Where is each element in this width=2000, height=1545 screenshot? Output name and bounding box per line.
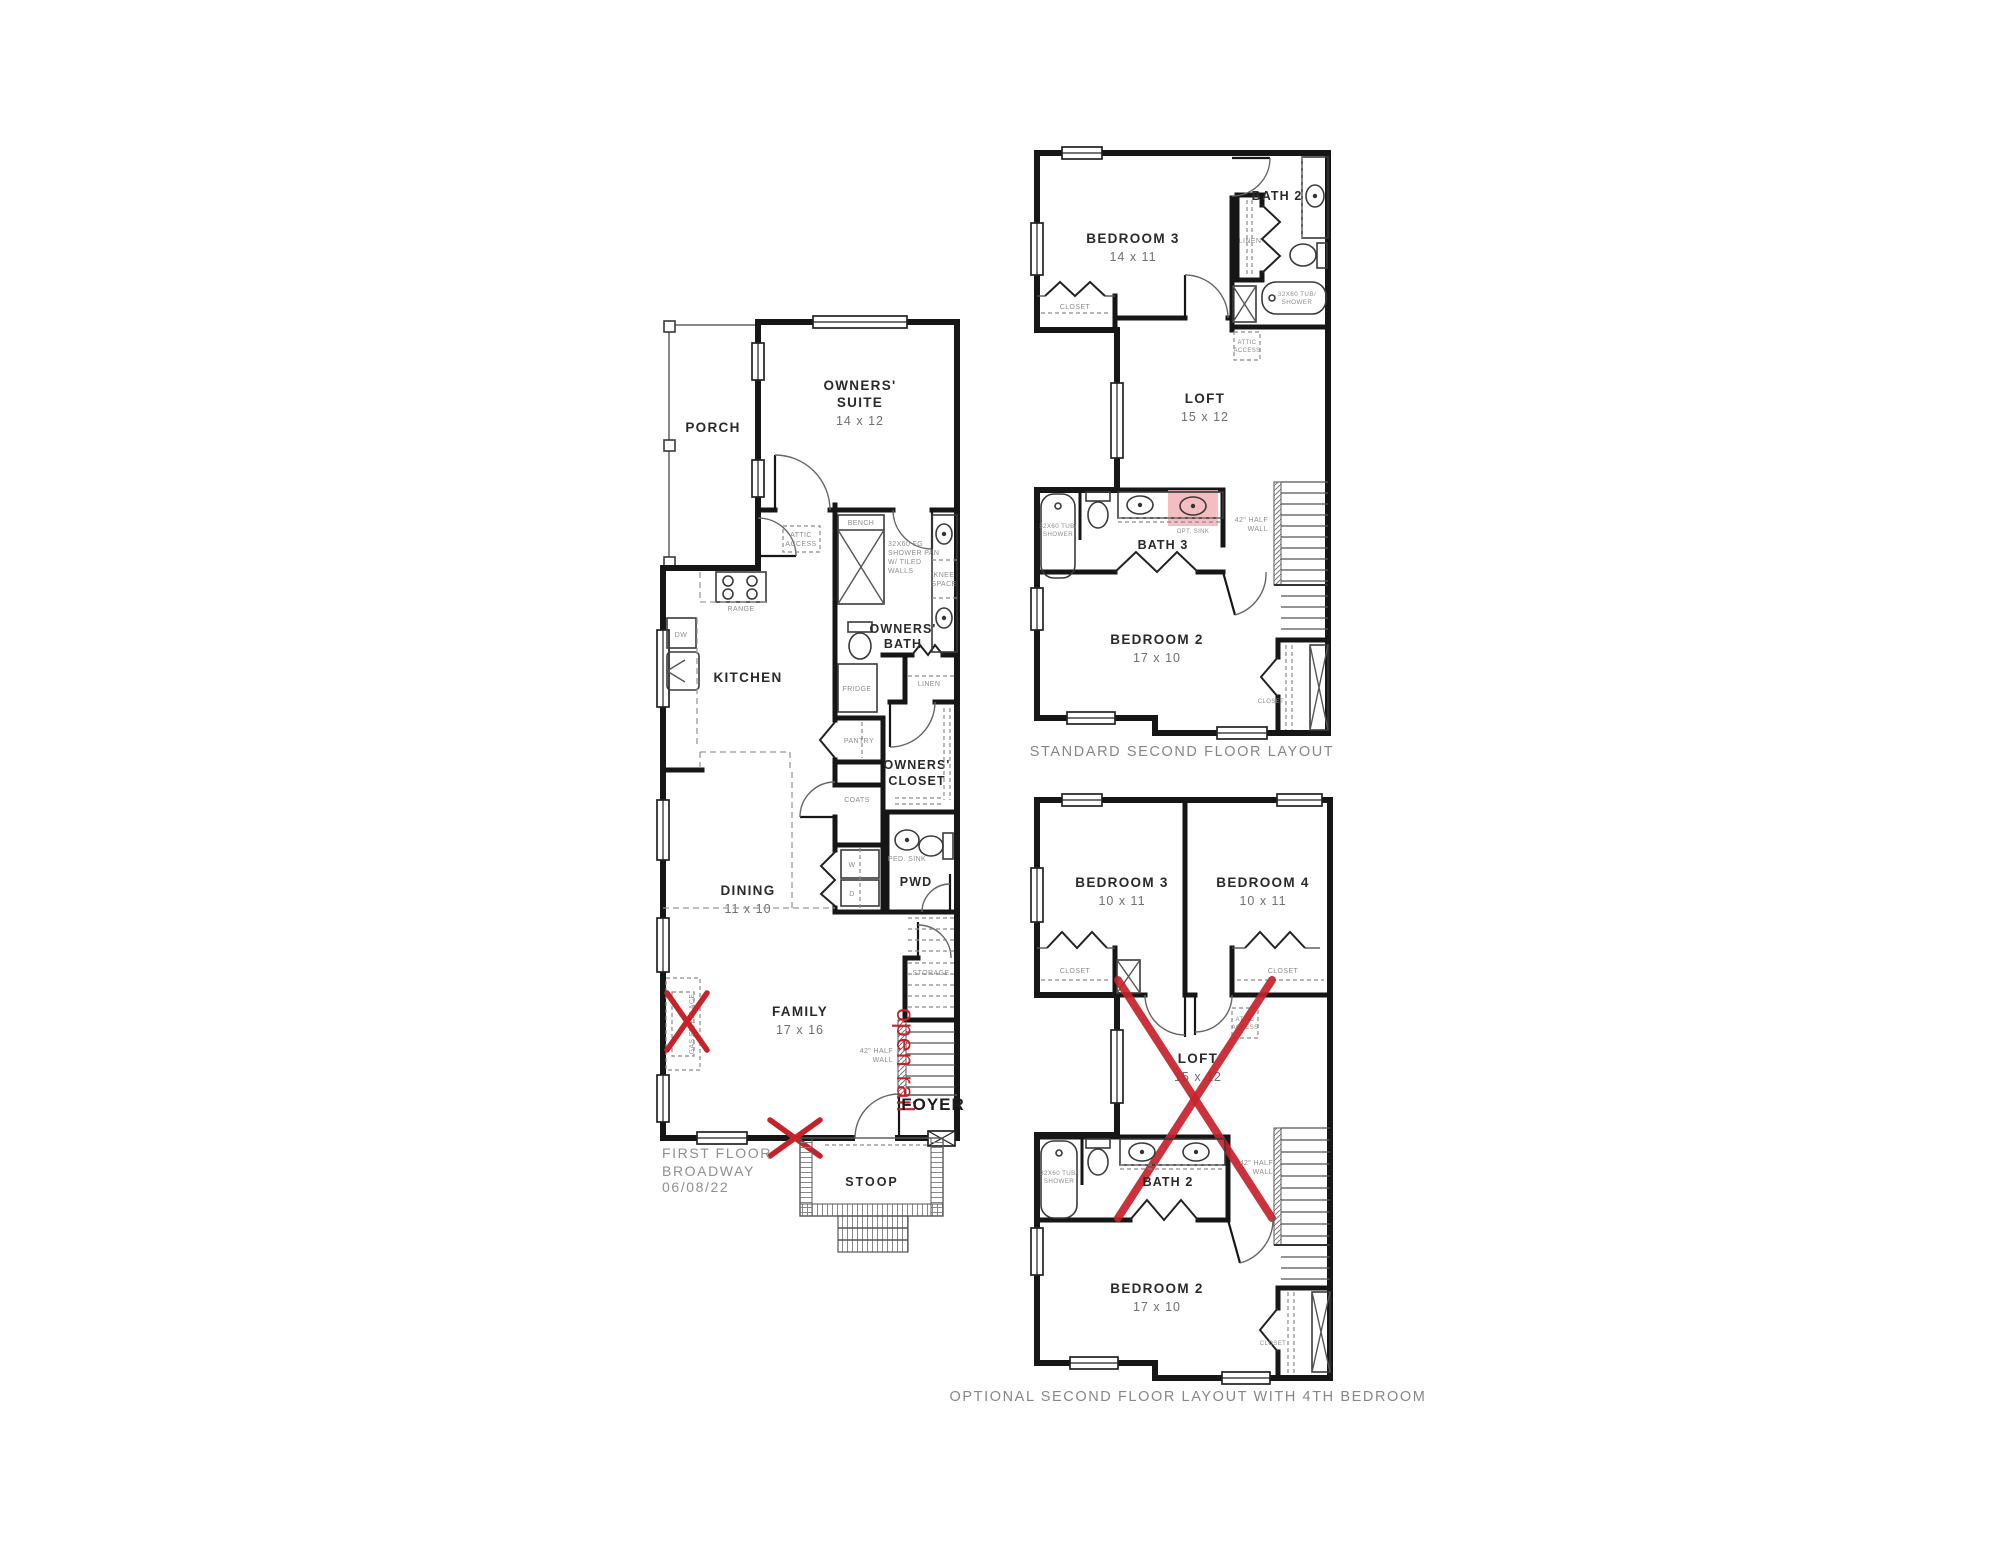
door-arc bbox=[1195, 995, 1232, 1035]
room-label-bedroom3: BEDROOM 3 bbox=[1086, 231, 1179, 246]
attic-access-label: ACCESS bbox=[1233, 348, 1260, 354]
room-dim-bedroom2: 17 x 10 bbox=[1133, 1300, 1181, 1314]
window bbox=[1031, 223, 1043, 275]
standard-second-floor-plan: CLOSET LINEN 32X60 TUB/ SHOWER BATH 2 BE… bbox=[1030, 147, 1335, 760]
stairs-above-dashed bbox=[908, 918, 955, 1007]
tub-icon bbox=[1262, 282, 1326, 314]
attic-access-box bbox=[1234, 332, 1260, 360]
porch-post bbox=[664, 321, 675, 332]
porch-outline bbox=[669, 325, 758, 568]
attic-access-label: ACCESS bbox=[785, 541, 816, 548]
window bbox=[1062, 794, 1102, 806]
toilet-icon bbox=[1290, 243, 1327, 268]
room-label-owners-closet: OWNERS' bbox=[884, 758, 951, 772]
door-arc bbox=[1185, 275, 1228, 318]
window bbox=[657, 1075, 669, 1122]
linen-label: LINEN bbox=[1239, 238, 1262, 245]
window bbox=[813, 316, 907, 328]
room-label-bedroom4: BEDROOM 4 bbox=[1216, 875, 1309, 890]
pwd-wall bbox=[663, 770, 957, 912]
stoop-steps bbox=[838, 1216, 908, 1252]
door-arc bbox=[1223, 572, 1266, 615]
half-wall-note: WALL bbox=[1253, 1169, 1273, 1176]
opt-sink-label: OPT. SINK bbox=[1177, 529, 1210, 535]
window bbox=[1217, 727, 1267, 739]
plan-title: BROADWAY bbox=[662, 1163, 755, 1179]
shower-icon bbox=[838, 515, 884, 604]
room-label-loft: LOFT bbox=[1178, 1051, 1218, 1066]
window bbox=[752, 343, 764, 380]
window bbox=[1070, 1357, 1118, 1369]
room-dim-bedroom2: 17 x 10 bbox=[1133, 651, 1181, 665]
window bbox=[1067, 712, 1115, 724]
pantry-label: PANTRY bbox=[844, 738, 874, 745]
room-label-owners-suite: SUITE bbox=[837, 395, 883, 410]
room-dim-dining: 11 x 10 bbox=[724, 902, 771, 916]
half-wall-note: WALL bbox=[1248, 526, 1268, 533]
room-label-owners-suite: OWNERS' bbox=[823, 378, 896, 393]
closet-label: CLOSET bbox=[1260, 1341, 1286, 1347]
door-arc bbox=[800, 782, 835, 817]
shower-pan-note: WALLS bbox=[888, 568, 913, 575]
stairs-icon bbox=[1274, 482, 1328, 629]
coats-label: COATS bbox=[844, 797, 870, 804]
room-label-bedroom3: BEDROOM 3 bbox=[1075, 875, 1168, 890]
window bbox=[657, 800, 669, 860]
dw-label: DW bbox=[675, 632, 687, 639]
half-wall-note: WALL bbox=[873, 1057, 893, 1064]
bench-label: BENCH bbox=[848, 520, 875, 527]
room-label-owners-bath: OWNERS' bbox=[870, 622, 937, 636]
optional-second-floor-plan: CLOSET CLOSET BEDROOM 3 10 x 11 BEDROOM … bbox=[950, 794, 1427, 1405]
room-dim-loft: 15 x 12 bbox=[1181, 410, 1229, 424]
room-label-pwd: PWD bbox=[900, 875, 932, 889]
room-dim-bedroom3: 14 x 11 bbox=[1109, 250, 1156, 264]
door-arc bbox=[775, 455, 830, 510]
half-wall-note: 42" HALF bbox=[860, 1048, 893, 1055]
chase-box bbox=[1233, 286, 1256, 322]
tub-label: 32X60 TUB/ bbox=[1039, 523, 1077, 530]
window bbox=[657, 918, 669, 972]
dryer-label: D bbox=[849, 891, 854, 898]
plan-caption-standard: STANDARD SECOND FLOOR LAYOUT bbox=[1030, 744, 1335, 760]
bifold-door bbox=[1262, 205, 1280, 273]
linen-label: LINEN bbox=[918, 681, 941, 688]
fridge-label: FRIDGE bbox=[843, 686, 872, 693]
window bbox=[752, 460, 764, 497]
shower-pan-note: 32X60 FG bbox=[888, 541, 923, 548]
knee-space-label: KNEE bbox=[934, 572, 955, 579]
room-label-owners-bath: BATH bbox=[884, 637, 922, 651]
room-label-porch: PORCH bbox=[685, 420, 740, 435]
bifold-door bbox=[1037, 932, 1115, 948]
room-label-kitchen: KITCHEN bbox=[713, 670, 782, 685]
closet-label: CLOSET bbox=[1060, 968, 1091, 975]
plan-title: FIRST FLOOR bbox=[662, 1145, 772, 1161]
closet-label: CLOSET bbox=[1268, 968, 1299, 975]
window bbox=[1031, 868, 1043, 922]
door-arc bbox=[1228, 1220, 1273, 1263]
door-arc bbox=[890, 702, 935, 747]
toilet-icon bbox=[1086, 1139, 1110, 1175]
vanity-icon bbox=[1302, 157, 1328, 238]
bifold-door bbox=[1261, 657, 1278, 697]
closet-label: CLOSET bbox=[1258, 699, 1284, 705]
window bbox=[1111, 1030, 1123, 1103]
shower-pan-note: W/ TILED bbox=[888, 559, 921, 566]
vanity-icon bbox=[1120, 1139, 1225, 1169]
stairs-icon bbox=[1274, 1128, 1330, 1279]
room-label-foyer: FOYER bbox=[901, 1095, 965, 1114]
room-label-bedroom2: BEDROOM 2 bbox=[1110, 1281, 1203, 1296]
room-label-dining: DINING bbox=[720, 883, 775, 898]
room-label-family: FAMILY bbox=[772, 1004, 828, 1019]
range-icon bbox=[716, 572, 766, 602]
room-dim-bedroom3: 10 x 11 bbox=[1098, 894, 1145, 908]
attic-access-box bbox=[783, 526, 820, 552]
tub-label: 32X60 TUB/ bbox=[1278, 291, 1316, 298]
interior-wall bbox=[1115, 800, 1330, 995]
window bbox=[1062, 147, 1102, 159]
window bbox=[697, 1132, 747, 1144]
room-dim-family: 17 x 16 bbox=[776, 1023, 824, 1037]
first-floor-plan: ATTIC ACCESS BENCH 32X60 FG SHOWER PAN W… bbox=[657, 316, 965, 1252]
bifold-door bbox=[820, 722, 835, 758]
kitchen-sink-icon bbox=[667, 652, 699, 690]
closet-label: CLOSET bbox=[1060, 304, 1091, 311]
bifold-door bbox=[1232, 932, 1320, 948]
tub-label: SHOWER bbox=[1044, 1178, 1074, 1185]
window bbox=[1111, 383, 1123, 458]
plan-caption-optional: OPTIONAL SECOND FLOOR LAYOUT WITH 4TH BE… bbox=[950, 1389, 1427, 1405]
toilet-icon bbox=[848, 622, 872, 659]
closet-rod bbox=[1288, 1292, 1294, 1374]
room-label-bath2: BATH 2 bbox=[1252, 189, 1303, 203]
room-dim-owners-suite: 14 x 12 bbox=[836, 414, 884, 428]
coats-laundry-wall bbox=[835, 762, 883, 912]
bifold-door bbox=[1037, 282, 1115, 296]
attic-access-label: ATTIC bbox=[1238, 340, 1257, 346]
tub-label: SHOWER bbox=[1282, 299, 1313, 306]
linen-closet-wall bbox=[883, 655, 957, 812]
bifold-door bbox=[821, 852, 835, 906]
toilet-icon bbox=[1086, 492, 1110, 528]
room-label-bath3: BATH 3 bbox=[1138, 538, 1189, 552]
toilet-icon bbox=[919, 833, 953, 859]
range-label: RANGE bbox=[728, 606, 755, 613]
tub-label: SHOWER bbox=[1043, 531, 1073, 538]
window bbox=[1277, 794, 1322, 806]
red-x-annotation bbox=[667, 993, 707, 1050]
room-dim-bedroom4: 10 x 11 bbox=[1239, 894, 1286, 908]
window bbox=[1222, 1372, 1270, 1384]
floor-plan-page: ATTIC ACCESS BENCH 32X60 FG SHOWER PAN W… bbox=[0, 0, 2000, 1545]
ped-sink-icon bbox=[895, 830, 919, 850]
room-label-bath2: BATH 2 bbox=[1143, 1175, 1194, 1189]
window bbox=[1031, 588, 1043, 630]
stoop-label: STOOP bbox=[845, 1175, 899, 1189]
floor-plan-svg: ATTIC ACCESS BENCH 32X60 FG SHOWER PAN W… bbox=[0, 0, 2000, 1545]
room-label-owners-closet: CLOSET bbox=[888, 774, 945, 788]
storage-label: STORAGE bbox=[913, 970, 950, 977]
porch-post bbox=[664, 440, 675, 451]
attic-access-label: ATTIC bbox=[790, 532, 812, 539]
knee-space-label: SPACE bbox=[931, 581, 956, 588]
bifold-door bbox=[1130, 1200, 1198, 1220]
washer-label: W bbox=[848, 862, 855, 869]
half-wall-note: 42" HALF bbox=[1240, 1160, 1273, 1167]
ped-sink-label: PED. SINK bbox=[888, 856, 926, 863]
room-label-bedroom2: BEDROOM 2 bbox=[1110, 632, 1203, 647]
room-label-loft: LOFT bbox=[1185, 391, 1225, 406]
closet-rod bbox=[1286, 645, 1292, 730]
window bbox=[1031, 1228, 1043, 1275]
half-wall-note: 42" HALF bbox=[1235, 517, 1268, 524]
plan-title: 06/08/22 bbox=[662, 1179, 729, 1195]
tub-label: 32X60 TUB/ bbox=[1040, 1170, 1078, 1177]
closet-rod bbox=[895, 708, 950, 804]
bifold-door bbox=[1115, 552, 1198, 572]
